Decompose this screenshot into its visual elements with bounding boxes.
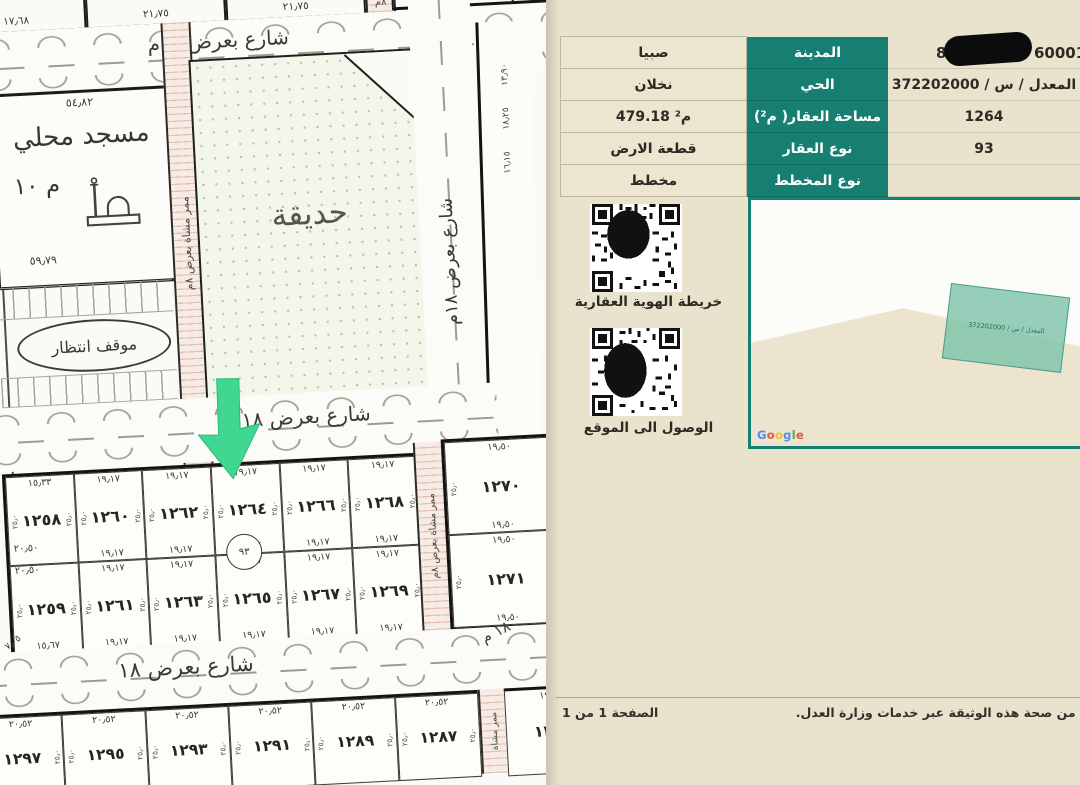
google-logo-letter: G [757, 428, 767, 442]
plot-side-dim: ٢٥٫٠ [453, 574, 463, 589]
table-header-plan-type: نوع المخطط [747, 165, 888, 197]
plot-side-dim: ٢٥٫٠ [206, 593, 216, 608]
plot-side-dim: ٢٥٫٠ [274, 589, 284, 604]
table-row: 479.18 م² مساحة العقار( م²) 1264 [560, 101, 1080, 133]
plot-top-dim: ٢٠٫٥٢ [229, 704, 311, 719]
plot-number: ١٢٨٩ [336, 731, 375, 751]
plot-bottom-dim: ١٩٫١٧ [353, 532, 420, 546]
plot-side-dim: ٢٥٫٠ [399, 731, 409, 746]
plot-cell: ٢٠٫٥٢ ١٢٨٩ ٢٥٫٠ ٢٥٫٠ [311, 697, 399, 785]
property-info-table: صبيا المدينة 8 60001 نخلان الحي المعدل /… [560, 37, 1080, 197]
plot-bottom-dim: ١٩٫١٧ [79, 546, 146, 560]
plot-side-dim: ٢٥٫٠ [66, 749, 76, 764]
plot-bottom-dim: ١٩٫١٧ [147, 542, 214, 556]
table-header-city: المدينة [747, 37, 888, 69]
plot-side-dim: ٢٥٫٠ [10, 514, 20, 529]
table-header-property-type: نوع العقار [747, 133, 888, 165]
plot-cell: ١٩٫٥٠ ١٢٧١ ١٩٫٥٠ ٢٥٫٠ [449, 529, 546, 628]
plot-side-dim: ٢٥٫٠ [78, 510, 88, 525]
plot-number: ١٢٥٩ [26, 598, 66, 619]
plot-number: ١٢٨٧ [419, 727, 458, 747]
edge-dimension: ١٦٫١٥ [502, 123, 514, 173]
parking-label: موقف انتظار [16, 315, 173, 375]
plot-number: ١٢٧٠ [481, 475, 521, 496]
walkway-label: ممر مشاة [489, 712, 501, 751]
plot-number: ١٢٦٩ [369, 580, 409, 601]
footer-verification-note: تحقق من صحة هذه الوثيقة عبر خدمات وزارة … [796, 705, 1080, 720]
property-polygon: المعدل / س / 372202000 [942, 283, 1070, 373]
plot-side-dim: ٢٥٫٠ [284, 499, 294, 514]
plot-number: ١٢٦٤ [227, 499, 267, 520]
plot-top-dim: ١٩٫١٧ [148, 557, 215, 571]
edge-dimension: ١٨٫٢٥ [500, 79, 512, 129]
table-right-block-number: 93 [888, 133, 1080, 165]
plot-side-dim: ٢٥٫٠ [218, 741, 228, 756]
plot-top-dim: ١٩٫٥٠ [450, 531, 546, 548]
plot-cell: ٢٠٫٥٢ ١٢٩٧ ٢٥٫٠ ٢٥٫٠ [0, 715, 66, 785]
qr-code-location [590, 328, 682, 416]
plot-number: ١٢٩١ [253, 736, 292, 756]
plot-top-dim: ٢٠٫٥٢ [146, 708, 228, 723]
plot-cell: ١٩٫١٧ ١٢٦٦ ١٩٫١٧ ٢٥٫٠ ٢٥٫٠ [279, 459, 352, 551]
deed-document-panel: صبيا المدينة 8 60001 نخلان الحي المعدل /… [546, 0, 1080, 785]
plot-side-dim: ٢٥٫٠ [64, 511, 74, 526]
plot-cell: ١٩٫١٧ ١٢٦١ ١٩٫١٧ ٢٥٫٠ ٢٥٫٠ [78, 559, 151, 651]
redaction-blob [943, 31, 1033, 67]
qr-code-property-identity [590, 204, 682, 292]
plot-number: ١٢٧١ [486, 568, 526, 589]
plot-side-dim: ٢٥٫٠ [338, 497, 348, 512]
plot-cell: ١٩٫١٧ ١٢٦٠ ١٩٫١٧ ٢٥٫٠ ٢٥٫٠ [74, 470, 147, 562]
plot-side-dim: ٢٥٫٠ [233, 740, 243, 755]
plot-side-dim: ٢٥٫٠ [137, 596, 147, 611]
plot-cell: ١٩٫١٧ ١٢٦٣ ١٩٫١٧ ٢٥٫٠ ٢٥٫٠ [147, 555, 220, 647]
table-row: قطعة الارض نوع العقار 93 [560, 133, 1080, 165]
table-row: مخطط نوع المخطط [560, 165, 1080, 197]
property-polygon-label: المعدل / س / 372202000 [967, 321, 1044, 336]
plot-number: ١٢٨٥ [534, 721, 546, 741]
plot-top-dim: ١٩٫١٧ [349, 458, 416, 472]
plot-side-dim: ٢٥٫٠ [468, 728, 478, 743]
walkway-top-label: ٨م [367, 0, 394, 9]
plot-top-dim: ٢٠٫٥٢ [0, 717, 61, 732]
table-header-district: الحي [747, 69, 888, 101]
plot-side-dim: ٢٥٫٠ [14, 603, 24, 618]
table-header-area: مساحة العقار( م²) [747, 101, 888, 133]
plot-side-dim: ٢٥٫٠ [83, 599, 93, 614]
plot-number: ١٢٩٥ [86, 744, 125, 764]
park-plot: حديقة [188, 48, 433, 429]
table-value-city: صبيا [560, 36, 747, 69]
parking-label-text: موقف انتظار [51, 334, 137, 357]
table-value-property-type: قطعة الارض [560, 132, 747, 165]
table-value-plan-type: مخطط [560, 164, 747, 197]
plot-number: ١٢٥٨ [22, 509, 62, 530]
map-sheet: ١٧٫٦٨ ٢١٫٧٥ ٢١٫٧٥ ٨م ٢١٫٣٠ ٢١٫٣٠ ٢١٫٣٠ ٢… [0, 0, 546, 785]
table-right-empty [888, 165, 1080, 197]
plot-number: ١٢٦٦ [296, 495, 336, 516]
plot-side-dim: ٢٥٫٠ [357, 585, 367, 600]
mosque-dim-top: ٥٤٫٨٢ [0, 91, 168, 113]
plot-cell: ١٩٫١٧ ١٢٦٧ ١٩٫١٧ ٢٥٫٠ ٢٥٫٠ [284, 548, 357, 640]
plot-side-dim: ٢٥٫٠ [316, 736, 326, 751]
location-arrow-icon [183, 372, 274, 486]
plot-top-dim: ١٩٫٥٠ [505, 688, 546, 704]
plot-side-dim: ٢٥٫٠ [353, 496, 363, 511]
plot-number: ١٢٦٧ [301, 584, 341, 605]
plot-side-dim: ٢٥٫٠ [302, 736, 312, 751]
plot-cell: ١٩٫٥٠ ١٢٧٠ ١٩٫٥٠ ٢٥٫٠ [444, 437, 546, 536]
plot-top-dim: ١٩٫١٧ [79, 561, 146, 575]
walkway-label: ممر مشاة بعرض ٨م [426, 493, 441, 579]
plot-cell: ٢٠٫٥٢ ١٢٩١ ٢٥٫٠ ٢٥٫٠ [228, 702, 316, 785]
plot-side-dim: ٢٥٫٠ [385, 732, 395, 747]
edge-dimension: ١٣٫٩٠ [499, 36, 511, 86]
plot-side-dim: ٢٥٫٠ [269, 500, 279, 515]
plot-side-dim: ٢٥٫٠ [215, 503, 225, 518]
google-logo-letter: o [767, 428, 775, 442]
plot-side-dim: ٢٥٫٠ [289, 588, 299, 603]
plot-number: ١٢٩٣ [169, 740, 208, 760]
cadastral-map-panel: ١٧٫٦٨ ٢١٫٧٥ ٢١٫٧٥ ٨م ٢١٫٣٠ ٢١٫٣٠ ٢١٫٣٠ ٢… [0, 0, 546, 785]
plot-top-dim: ١٩٫١٧ [280, 461, 347, 475]
plot-side-dim: ٢٥٫٠ [220, 592, 230, 607]
plot-top-dim: ٢٠٫٥٢ [313, 699, 395, 714]
plot-top-dim: ١٩٫٥٠ [445, 439, 546, 456]
plot-side-dim: ٢٥٫٠ [132, 507, 142, 522]
plot-cell: ١٩٫١٧ ١٢٦٩ ١٩٫١٧ ٢٥٫٠ ٢٥٫٠ [353, 545, 426, 637]
plot-side-dim: ٢٥٫٠ [52, 749, 62, 764]
google-logo: Google [757, 428, 804, 442]
grid-left-dim: ٢٠٫٥٠ [13, 543, 38, 555]
mosque-number: م ١٠ [13, 172, 61, 200]
plot-number: ١٢٦٣ [163, 591, 203, 612]
plot-side-dim: ٢٥٫٠ [343, 586, 353, 601]
table-right-plan-ref: المعدل / س / 372202000 [888, 69, 1080, 101]
google-logo-letter: o [775, 428, 783, 442]
plot-bottom-dim: ١٩٫١٧ [284, 535, 351, 549]
plot-side-dim: ٢٥٫٠ [152, 596, 162, 611]
footer-divider [556, 697, 1080, 698]
plot-cell: ٢٠٫٥٢ ١٢٩٥ ٢٥٫٠ ٢٥٫٠ [62, 710, 150, 785]
table-right-plot-number: 1264 [888, 101, 1080, 133]
plot-side-dim: ٢٥٫٠ [449, 481, 459, 496]
plot-cell: ٢٠٫٥٢ ١٢٨٧ ٢٥٫٠ ٢٥٫٠ [395, 693, 483, 781]
qr-label-location: الوصول الى الموقع [546, 420, 751, 436]
google-map-embed: المعدل / س / 372202000 Google [748, 197, 1080, 449]
plot-top-dim: ١٩٫١٧ [354, 547, 421, 561]
plot-number: ١٢٦٢ [159, 502, 199, 523]
plot-grid-right: ١٩٫٥٠ ١٢٧٠ ١٩٫٥٠ ٢٥٫٠ ١٩٫٥٠ ١٢٧١ ١٩٫٥٠ ٢… [441, 433, 546, 631]
plot-number: ١٢٩٧ [3, 749, 42, 769]
walkway-label: ممر مشاة بعرض ٨م [178, 196, 196, 291]
plot-top-dim: ١٩٫١٧ [75, 472, 142, 486]
plot-side-dim: ٢٥٫٠ [201, 504, 211, 519]
park-label: حديقة [198, 190, 422, 238]
survey-circle-label: ٩٣ [239, 546, 250, 558]
mosque-label: مسجد محلي [0, 116, 170, 155]
footer-page-number: الصفحة 1 من 1 [562, 705, 658, 720]
plot-cell: ١٩٫٥٠ ١٢٨٥ [504, 684, 546, 777]
plot-number: ١٢٦١ [95, 595, 135, 616]
plot-top-dim: ١٥٫٣٣ [6, 476, 73, 490]
table-value-district: نخلان [560, 68, 747, 101]
top-plot: ٢١٫٣٠ [508, 0, 546, 1]
google-logo-letter: e [796, 428, 804, 442]
plot-top-dim: ١٩٫١٧ [285, 550, 352, 564]
plot-number: ١٢٦٨ [364, 491, 404, 512]
plot-cell: ٢٠٫٥٢ ١٢٩٣ ٢٥٫٠ ٢٥٫٠ [145, 706, 233, 785]
google-logo-letter: g [783, 428, 792, 442]
plot-side-dim: ٢٥٫٠ [147, 507, 157, 522]
mosque-plot: ٥٤٫٨٢ مسجد محلي م ١٠ ٥٩٫٧٩ [0, 85, 180, 290]
plot-side-dim: ٢٥٫٠ [68, 600, 78, 615]
plot-number: ١٢٦٠ [90, 506, 130, 527]
plot-top-dim: ٢٠٫٥٢ [63, 712, 145, 727]
mosque-icon [81, 168, 146, 229]
deed-number-suffix: 60001 [1034, 44, 1080, 62]
qr-label-property-identity: خريطة الهوية العقارية [546, 294, 751, 310]
mosque-dim-bottom: ٥٩٫٧٩ [29, 253, 57, 267]
table-right-deed-number: 8 60001 [888, 37, 1080, 69]
plot-number: ١٢٦٥ [232, 588, 272, 609]
plot-side-dim: ٢٥٫٠ [150, 744, 160, 759]
plot-cell: ١٩٫١٧ ١٢٦٨ ١٩٫١٧ ٢٥٫٠ ٢٥٫٠ [348, 456, 421, 548]
table-row: صبيا المدينة 8 60001 [560, 37, 1080, 69]
grid-left-dim: ٢٠٫٥٠ [15, 565, 40, 577]
plot-top-dim: ٢٠٫٥٢ [396, 695, 478, 710]
plot-side-dim: ٢٥٫٠ [135, 745, 145, 760]
table-value-area: 479.18 م² [560, 100, 747, 133]
table-row: نخلان الحي المعدل / س / 372202000 [560, 69, 1080, 101]
